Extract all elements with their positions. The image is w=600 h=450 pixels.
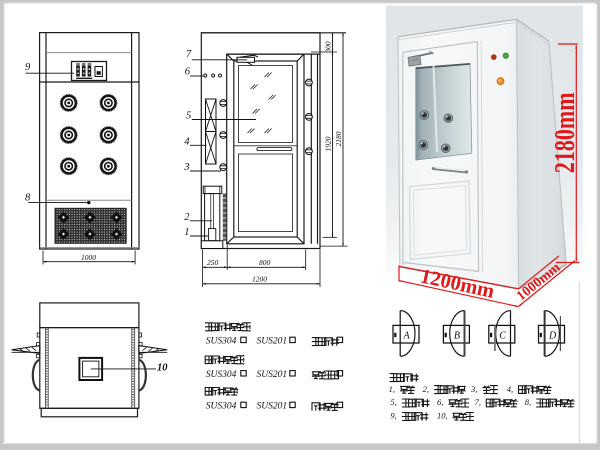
svg-text:1200: 1200	[252, 275, 267, 284]
svg-text:C: C	[499, 330, 506, 341]
svg-text:A: A	[403, 330, 411, 341]
svg-text::: :	[236, 386, 239, 395]
svg-text:SUS304: SUS304	[206, 402, 237, 412]
svg-text:1920: 1920	[324, 136, 333, 151]
svg-text:10,: 10,	[437, 411, 448, 421]
svg-text:800: 800	[259, 258, 271, 267]
svg-text:2,: 2,	[423, 384, 429, 394]
svg-text:4: 4	[184, 136, 190, 147]
svg-text:9,: 9,	[390, 411, 396, 421]
svg-text:2180mm: 2180mm	[548, 92, 581, 173]
svg-text:SUS201: SUS201	[257, 337, 288, 347]
svg-text:SUS304: SUS304	[206, 337, 237, 347]
svg-text::: :	[242, 355, 245, 364]
svg-text:10: 10	[157, 362, 168, 373]
svg-text:8: 8	[25, 193, 31, 204]
svg-text:2: 2	[184, 212, 190, 223]
svg-text:5,: 5,	[390, 397, 396, 407]
svg-text::: :	[417, 373, 420, 382]
svg-text:250: 250	[207, 258, 219, 267]
svg-text:8,: 8,	[525, 397, 531, 407]
svg-text:3: 3	[183, 162, 189, 173]
svg-text:4,: 4,	[507, 384, 513, 394]
svg-text:D: D	[548, 330, 557, 341]
svg-text:SUS201: SUS201	[257, 402, 288, 412]
svg-text:2180: 2180	[334, 131, 343, 146]
svg-text:B: B	[454, 330, 460, 341]
svg-text:7: 7	[186, 49, 192, 60]
svg-text:1,: 1,	[389, 384, 395, 394]
svg-text:1000: 1000	[81, 253, 96, 262]
svg-text:7,: 7,	[475, 397, 481, 407]
svg-text:SUS304: SUS304	[206, 370, 237, 380]
svg-text:300: 300	[324, 41, 333, 54]
svg-text:1: 1	[184, 227, 189, 238]
svg-text::: :	[249, 322, 252, 331]
svg-text:9: 9	[25, 62, 31, 73]
svg-text:6: 6	[185, 67, 191, 78]
svg-text:5: 5	[186, 111, 191, 122]
svg-text:6,: 6,	[437, 397, 443, 407]
svg-text:3,: 3,	[470, 384, 477, 394]
svg-text:SUS201: SUS201	[257, 370, 288, 380]
